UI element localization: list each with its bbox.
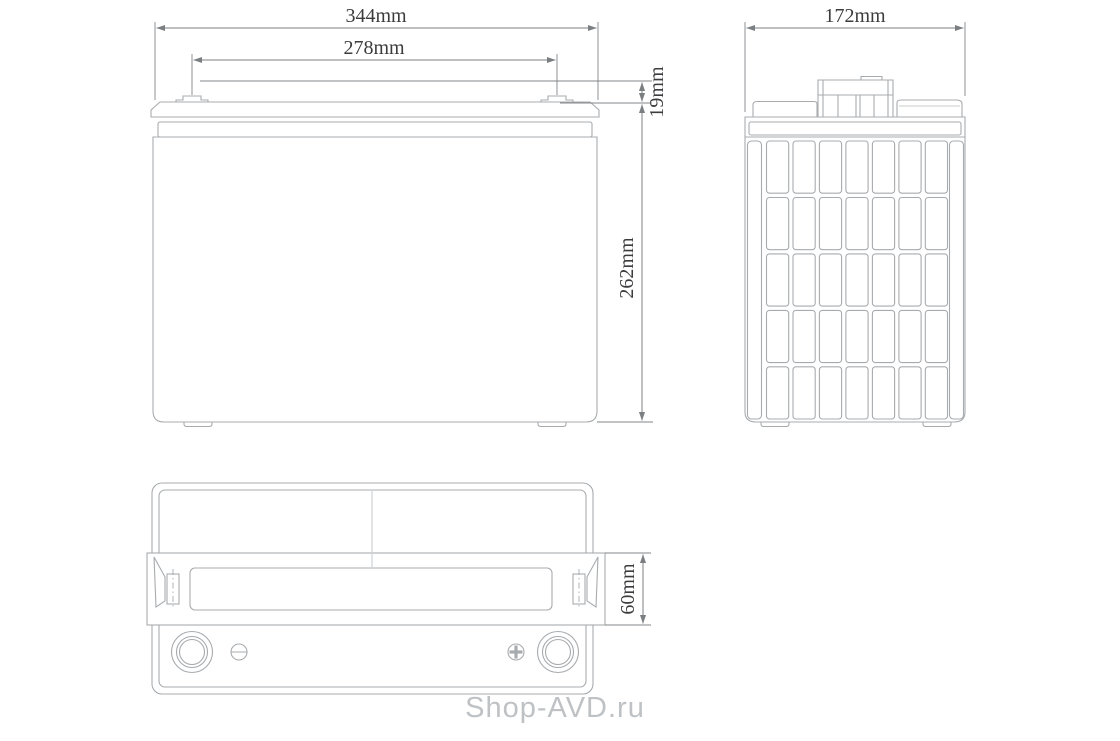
dim-label-overall-depth: 172mm [824,5,886,27]
front-terminal-left [176,96,208,102]
side-lid-left [753,102,817,118]
rib-cell [925,310,947,362]
battery-dimensional-drawing: 344mm 278mm 19mm 262mm [0,0,1120,741]
rib-cell [925,198,947,250]
rib-cell [872,254,894,306]
side-foot-left [761,422,789,427]
rib-cell [872,198,894,250]
front-foot-left [184,422,212,427]
rib-cell [872,367,894,419]
rib-cell [793,310,815,362]
rib-cell [846,141,868,193]
negative-terminal-post [172,632,213,673]
rib-cell [819,198,841,250]
dim-label-terminal-height: 19mm [646,66,668,118]
front-view: 344mm 278mm 19mm 262mm [151,5,668,427]
rib-cell [899,367,921,419]
rib-cell [793,254,815,306]
front-dimensions: 344mm 278mm 19mm 262mm [155,5,668,422]
rib-cell [819,310,841,362]
top-view: 60mm [147,483,651,694]
rib-cell [925,254,947,306]
rib-cell [899,198,921,250]
positive-terminal-post [538,632,579,673]
side-body [745,117,965,422]
front-lid-ridge [158,122,592,137]
rib-cell [899,310,921,362]
rib-cell [846,310,868,362]
side-dimensions: 172mm [745,5,965,112]
side-lid-right [897,100,962,117]
side-foot-right [923,422,951,427]
rib-cell [819,141,841,193]
side-view: 172mm [745,5,965,427]
rib-cell [899,141,921,193]
dim-label-band-height: 60mm [617,563,639,615]
dim-label-terminal-spacing: 278mm [343,37,405,59]
rib-cell [925,367,947,419]
rib-cell [872,310,894,362]
side-lid-ridge [749,122,961,135]
rib-cell [819,254,841,306]
rib-cell [846,198,868,250]
rib-cell [767,310,789,362]
plus-mark-icon [508,644,524,660]
rib-cell [793,367,815,419]
watermark-text: Shop-AVD.ru [465,692,645,724]
rib-cell [872,141,894,193]
dim-label-overall-width: 344mm [345,5,407,27]
rib-cell [925,141,947,193]
rib-cell [767,367,789,419]
side-rib-grid [767,141,948,419]
rib-cell [767,198,789,250]
side-rib-left [748,141,762,419]
rib-cell [846,367,868,419]
rib-cell [767,141,789,193]
front-terminal-right [541,96,573,102]
minus-mark-icon [231,644,248,660]
top-handle-band [147,553,605,625]
rib-cell [793,198,815,250]
rib-cell [846,254,868,306]
side-rib-right [950,141,964,419]
top-dimensions: 60mm [605,553,651,625]
rib-cell [767,254,789,306]
rib-cell [899,254,921,306]
dim-label-container-height: 262mm [616,237,638,299]
rib-cell [819,367,841,419]
front-lid [151,102,599,117]
rib-cell [793,141,815,193]
front-body [153,137,597,422]
front-foot-right [538,422,566,427]
